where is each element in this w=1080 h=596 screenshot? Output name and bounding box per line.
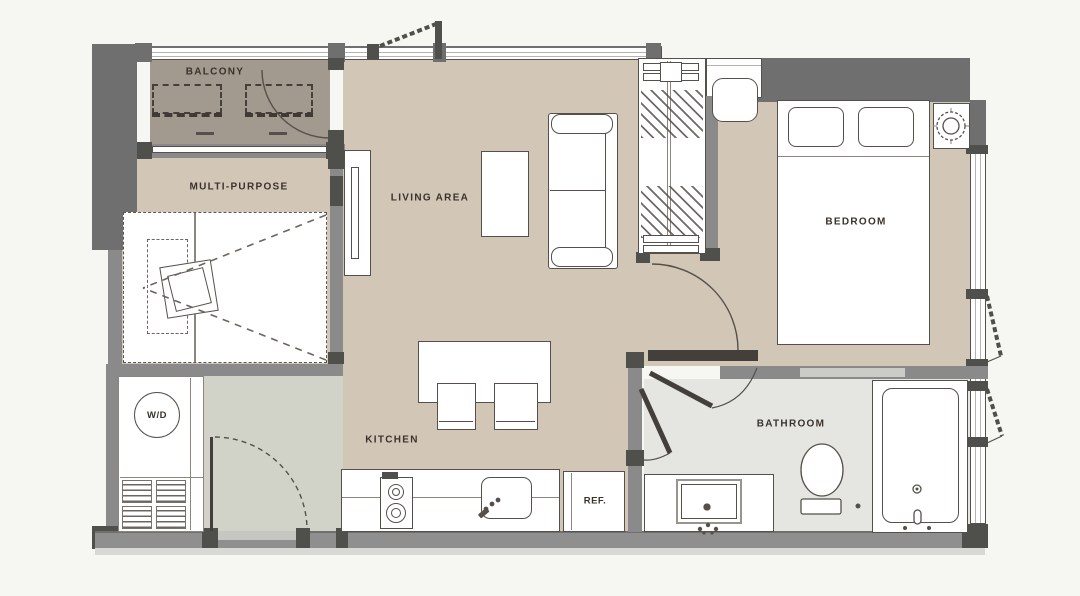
tub-faucet-icon — [903, 510, 931, 530]
floor-plan: W/D — [0, 0, 1080, 596]
vanity-faucet-icon — [698, 504, 718, 535]
toilet — [801, 444, 861, 514]
washer-dryer-label: W/D — [147, 410, 167, 421]
tub-drain-icon — [913, 485, 921, 493]
window-casement-bathroom — [987, 389, 1002, 443]
window-casement-top — [367, 21, 442, 60]
multi-purpose-label: MULTI-PURPOSE — [190, 182, 289, 193]
bedroom-door-arc — [652, 264, 738, 350]
refrigerator-label: REF. — [584, 496, 607, 507]
ceiling-lamp-icon — [933, 108, 969, 144]
window-casement-bedroom — [987, 296, 1001, 362]
bathroom-label: BATHROOM — [757, 419, 826, 430]
balcony-label: BALCONY — [186, 67, 245, 78]
bathroom-folding-door — [638, 368, 757, 460]
living-area-label: LIVING AREA — [391, 193, 469, 204]
kitchen-label: KITCHEN — [365, 435, 419, 446]
bedroom-label: BEDROOM — [825, 217, 886, 228]
foldbed-projection-lines — [143, 215, 326, 360]
balcony-door-arc — [262, 70, 330, 138]
sink-faucet-icon — [478, 498, 501, 519]
entrance-door-arc — [215, 437, 307, 530]
